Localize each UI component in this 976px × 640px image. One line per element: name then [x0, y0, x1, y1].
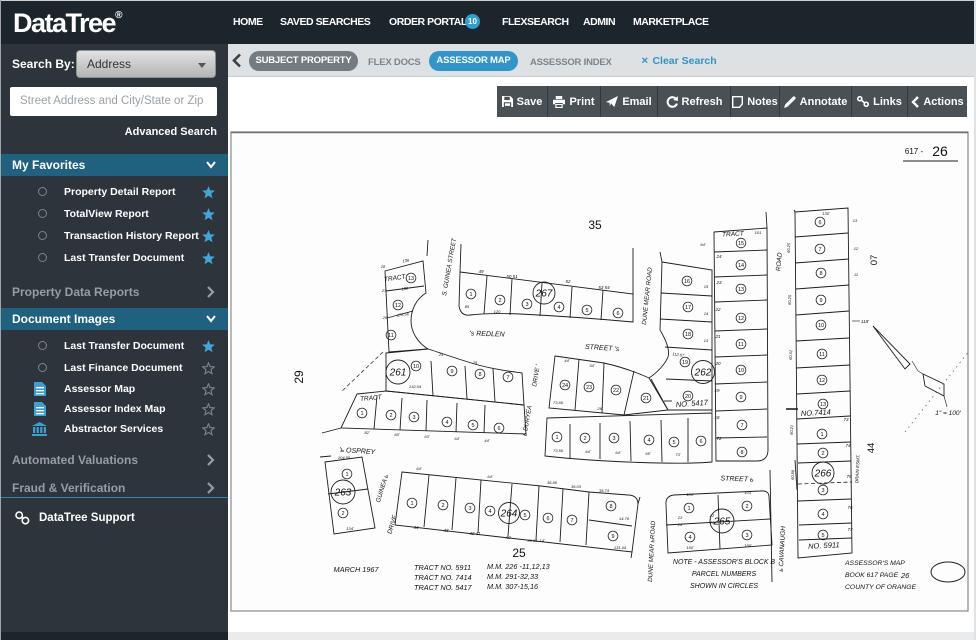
- svg-text:76: 76: [847, 505, 853, 510]
- svg-text:73ʹ: 73ʹ: [675, 452, 680, 457]
- svg-text:TRACT NO. 7414: TRACT NO. 7414: [414, 573, 472, 582]
- svg-text:8: 8: [478, 372, 481, 378]
- svg-text:3: 3: [412, 415, 415, 421]
- svg-text:13: 13: [408, 276, 414, 282]
- svg-text:6: 6: [546, 516, 549, 522]
- svg-text:22: 22: [709, 513, 715, 518]
- svg-text:150ʹ: 150ʹ: [744, 543, 752, 548]
- svg-text:1: 1: [410, 501, 413, 507]
- svg-text:264: 264: [500, 508, 518, 519]
- svg-text:44: 44: [413, 525, 419, 530]
- svg-text:44ʹ: 44ʹ: [484, 438, 489, 443]
- svg-text:15: 15: [738, 241, 744, 247]
- svg-text:9: 9: [611, 534, 614, 540]
- svg-text:3: 3: [612, 436, 615, 442]
- svg-text:35.74: 35.74: [599, 488, 610, 493]
- svg-text:261: 261: [389, 367, 407, 378]
- svg-text:BOOK 617 PAGE: BOOK 617 PAGE: [845, 572, 899, 579]
- svg-text:2: 2: [821, 451, 824, 457]
- svg-text:64ʹ: 64ʹ: [487, 474, 492, 479]
- svg-text:24: 24: [715, 254, 722, 259]
- svg-text:73.66: 73.66: [553, 400, 564, 405]
- svg-text:21: 21: [714, 334, 721, 339]
- svg-text:26: 26: [932, 143, 948, 159]
- svg-text:39 66. 14ʹ: 39 66. 14ʹ: [527, 538, 545, 543]
- svg-text:21: 21: [709, 520, 714, 525]
- svg-text:64ʹ: 64ʹ: [585, 449, 590, 454]
- svg-text:26: 26: [382, 315, 388, 320]
- svg-text:NO.7414: NO.7414: [801, 407, 831, 418]
- svg-text:4: 4: [557, 305, 560, 311]
- svg-text:NO. 5911: NO. 5911: [808, 540, 840, 551]
- svg-text:60ʹ: 60ʹ: [394, 432, 399, 437]
- svg-text:16: 16: [684, 279, 690, 285]
- svg-text:12: 12: [819, 378, 825, 384]
- svg-text:3: 3: [468, 506, 471, 512]
- svg-text:82ʹ: 82ʹ: [364, 430, 369, 435]
- svg-text:11: 11: [738, 342, 744, 348]
- svg-text:50 51: 50 51: [506, 274, 518, 279]
- svg-text:4: 4: [821, 512, 824, 518]
- svg-text:103ʹ: 103ʹ: [744, 490, 752, 495]
- svg-text:22: 22: [613, 388, 619, 394]
- svg-text:64ʹ: 64ʹ: [615, 450, 620, 455]
- svg-text:1: 1: [555, 435, 558, 441]
- svg-text:1: 1: [820, 432, 823, 438]
- svg-text:120: 120: [494, 309, 501, 314]
- svg-text:7: 7: [740, 423, 743, 429]
- svg-text:36.03: 36.03: [571, 484, 582, 489]
- svg-text:7: 7: [818, 247, 821, 253]
- svg-text:1: 1: [360, 411, 363, 417]
- svg-text:19: 19: [714, 388, 720, 393]
- svg-text:75: 75: [846, 474, 852, 479]
- svg-text:12: 12: [395, 303, 401, 309]
- svg-text:10: 10: [738, 368, 744, 374]
- svg-text:24: 24: [562, 383, 568, 389]
- svg-text:5: 5: [821, 533, 824, 539]
- svg-text:TRACT NO. 5417: TRACT NO. 5417: [414, 583, 473, 592]
- svg-text:77: 77: [847, 527, 853, 532]
- svg-text:63ʹ: 63ʹ: [424, 434, 429, 439]
- svg-text:118ʹ: 118ʹ: [861, 318, 869, 324]
- svg-text:19: 19: [682, 360, 688, 366]
- svg-text:6: 6: [616, 311, 619, 317]
- svg-text:12: 12: [854, 246, 859, 251]
- svg-text:1: 1: [687, 506, 690, 512]
- svg-text:23: 23: [715, 280, 722, 285]
- svg-text:23: 23: [586, 385, 592, 391]
- svg-text:103ʹ: 103ʹ: [686, 492, 694, 497]
- svg-text:28: 28: [380, 264, 386, 269]
- svg-text:267: 267: [535, 288, 553, 299]
- svg-text:TRACT: TRACT: [722, 230, 745, 238]
- svg-text:11: 11: [854, 272, 858, 277]
- svg-text:23: 23: [677, 515, 683, 520]
- svg-text:9: 9: [739, 395, 742, 401]
- svg-text:24: 24: [438, 352, 444, 357]
- svg-text:9: 9: [819, 298, 822, 304]
- svg-text:13: 13: [738, 287, 744, 293]
- svg-text:6: 6: [818, 220, 821, 226]
- svg-text:14: 14: [704, 311, 709, 316]
- svg-text:M.M. 307-15,16: M.M. 307-15,16: [487, 582, 539, 591]
- svg-text:5: 5: [672, 440, 675, 446]
- svg-text:60.25: 60.25: [786, 242, 792, 253]
- svg-text:25: 25: [472, 360, 478, 365]
- svg-text:266: 266: [814, 468, 832, 479]
- svg-text:42 41: 42 41: [469, 531, 481, 536]
- svg-text:25: 25: [512, 546, 526, 560]
- svg-text:1: 1: [469, 292, 472, 298]
- svg-text:18: 18: [685, 332, 691, 338]
- svg-text:263: 263: [334, 487, 352, 498]
- svg-text:20: 20: [714, 361, 721, 366]
- svg-text:ʹs REDLEN: ʹs REDLEN: [469, 329, 505, 338]
- svg-text:5: 5: [585, 308, 588, 314]
- svg-text:104.55: 104.55: [338, 455, 351, 460]
- svg-text:3: 3: [525, 302, 528, 308]
- svg-text:7: 7: [570, 518, 573, 524]
- svg-text:64ʹ: 64ʹ: [454, 436, 459, 441]
- svg-text:22: 22: [714, 307, 721, 312]
- svg-text:10: 10: [413, 364, 419, 370]
- svg-text:M.M. 226 -11,12,13: M.M. 226 -11,12,13: [487, 562, 550, 571]
- svg-text:20: 20: [685, 394, 691, 400]
- svg-text:40: 40: [505, 535, 511, 540]
- svg-text:9: 9: [450, 369, 453, 375]
- svg-text:130ʹ: 130ʹ: [822, 211, 830, 216]
- svg-text:2: 2: [745, 504, 748, 510]
- svg-text:27: 27: [381, 288, 387, 293]
- svg-text:SHOWN IN CIRCLES: SHOWN IN CIRCLES: [690, 583, 758, 590]
- svg-text:11: 11: [819, 352, 825, 358]
- svg-text:64ʹ: 64ʹ: [416, 466, 421, 471]
- svg-text:2: 2: [498, 298, 501, 304]
- svg-text:72: 72: [716, 436, 722, 441]
- svg-text:73.56: 73.56: [553, 448, 564, 453]
- svg-text:2: 2: [583, 436, 586, 442]
- svg-text:14: 14: [738, 263, 744, 269]
- svg-text:NOTE - ASSESSORʹS BLOCK B: NOTE - ASSESSORʹS BLOCK B: [673, 558, 776, 566]
- svg-text:53 54: 53 54: [598, 285, 610, 290]
- svg-text:21: 21: [643, 396, 649, 402]
- svg-text:14.76: 14.76: [619, 516, 630, 521]
- svg-text:65ʹ: 65ʹ: [645, 451, 650, 456]
- svg-text:132.04: 132.04: [409, 384, 422, 389]
- svg-text:7: 7: [506, 375, 509, 381]
- svg-text:2: 2: [441, 503, 444, 509]
- svg-text:26ʹ: 26ʹ: [596, 406, 602, 411]
- svg-text:18: 18: [714, 415, 720, 420]
- svg-text:13: 13: [853, 218, 858, 223]
- svg-text:49: 49: [478, 269, 484, 274]
- svg-text:265: 265: [713, 516, 731, 527]
- svg-text:85: 85: [465, 304, 470, 309]
- svg-text:STREET ь: STREET ь: [720, 475, 754, 483]
- svg-text:1: 1: [345, 472, 348, 478]
- svg-text:36.95: 36.95: [547, 480, 558, 485]
- svg-text:15: 15: [704, 284, 709, 289]
- svg-text:60.25: 60.25: [787, 294, 793, 305]
- svg-text:13: 13: [704, 338, 709, 343]
- svg-text:6: 6: [699, 439, 702, 445]
- svg-text:8: 8: [740, 450, 743, 456]
- svg-text:131.64: 131.64: [614, 545, 627, 550]
- svg-text:TRACT NO. 5911: TRACT NO. 5911: [414, 563, 471, 572]
- svg-text:150ʹ: 150ʹ: [686, 545, 694, 550]
- svg-text:4: 4: [445, 420, 448, 426]
- svg-text:60.21: 60.21: [789, 425, 795, 435]
- svg-text:60.88: 60.88: [790, 469, 796, 480]
- svg-text:134ʹ: 134ʹ: [346, 526, 354, 531]
- svg-text:4: 4: [688, 535, 691, 541]
- svg-text:24: 24: [677, 522, 683, 527]
- svg-text:3: 3: [745, 533, 748, 539]
- svg-text:PARCEL NUMBERS: PARCEL NUMBERS: [692, 571, 757, 578]
- svg-text:10: 10: [818, 323, 824, 329]
- svg-text:5: 5: [471, 423, 474, 429]
- svg-text:3: 3: [821, 488, 824, 494]
- svg-text:29: 29: [292, 370, 306, 384]
- svg-text:12: 12: [738, 316, 744, 322]
- svg-text:MARCH 1967: MARCH 1967: [333, 565, 379, 574]
- svg-text:ASSESSORʹS MAP: ASSESSORʹS MAP: [844, 559, 905, 567]
- svg-text:43: 43: [443, 528, 449, 533]
- svg-text:8: 8: [819, 271, 822, 277]
- svg-text:8: 8: [609, 504, 612, 510]
- svg-text:4: 4: [647, 438, 650, 444]
- svg-text:52: 52: [565, 279, 571, 284]
- svg-text:44: 44: [866, 443, 877, 454]
- svg-text:34ʹ: 34ʹ: [589, 363, 594, 368]
- svg-text:617 -: 617 -: [905, 147, 924, 156]
- svg-text:07: 07: [869, 255, 880, 266]
- svg-text:2: 2: [389, 413, 392, 419]
- svg-text:26: 26: [900, 571, 910, 580]
- svg-text:35: 35: [588, 218, 602, 232]
- svg-text:73: 73: [843, 417, 849, 422]
- svg-text:64ʹ: 64ʹ: [700, 242, 705, 247]
- svg-text:M.M. 291-32,33: M.M. 291-32,33: [487, 572, 538, 581]
- svg-text:4: 4: [488, 509, 491, 515]
- svg-text:1ʺ = 100ʹ: 1ʺ = 100ʹ: [935, 409, 961, 417]
- svg-text:44ʹ: 44ʹ: [564, 358, 569, 363]
- svg-text:5: 5: [523, 513, 526, 519]
- svg-text:11: 11: [388, 333, 394, 339]
- svg-text:101: 101: [755, 230, 762, 235]
- svg-text:262: 262: [694, 367, 712, 378]
- svg-text:60.51: 60.51: [788, 350, 794, 360]
- svg-text:17: 17: [685, 305, 691, 311]
- svg-text:COUNTY OF ORANGE: COUNTY OF ORANGE: [845, 584, 917, 591]
- svg-text:74: 74: [845, 443, 851, 448]
- svg-text:2: 2: [341, 511, 344, 517]
- svg-text:6: 6: [497, 426, 500, 432]
